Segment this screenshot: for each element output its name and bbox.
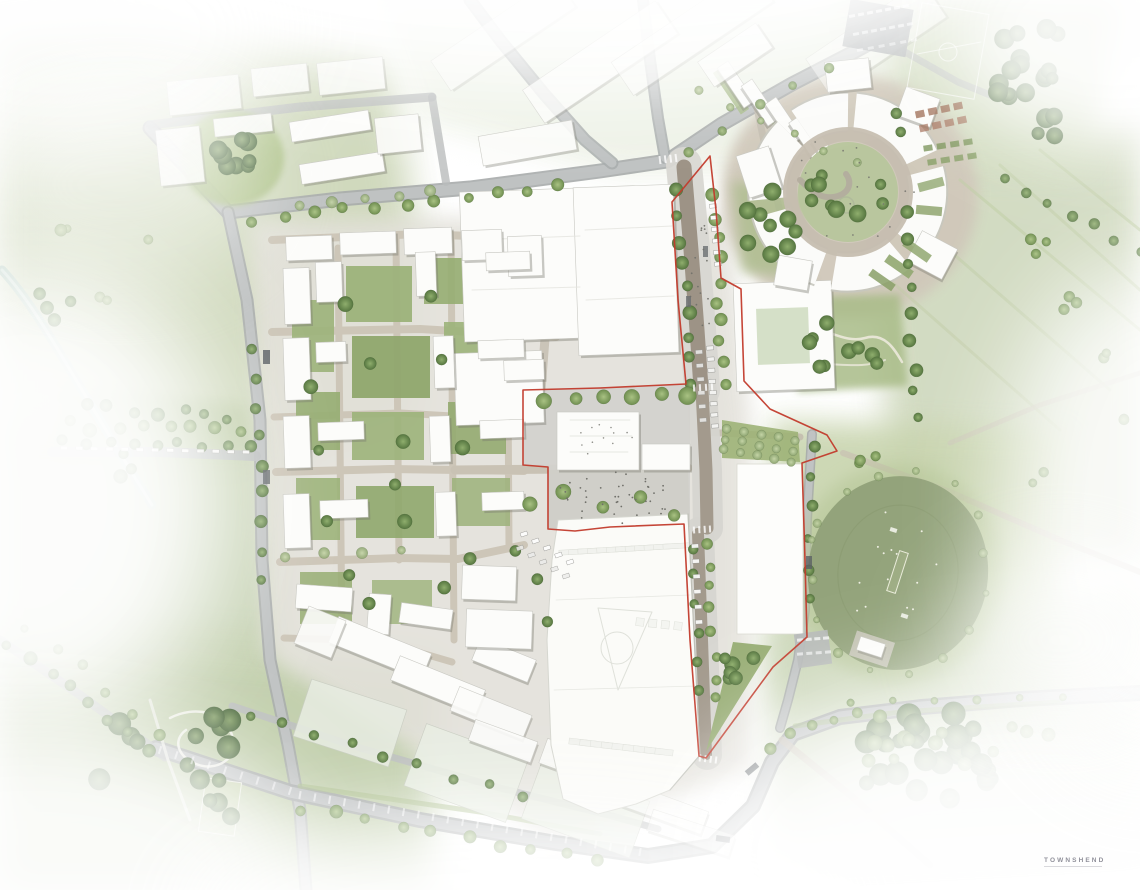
masterplan-canvas xyxy=(0,0,1140,890)
ring-wing xyxy=(825,58,874,95)
bus-shelter xyxy=(263,470,270,484)
building xyxy=(482,491,527,513)
bus-shelter xyxy=(263,350,270,364)
ring-wing xyxy=(774,255,814,293)
townshend-logo-mark-icon xyxy=(1044,857,1140,890)
building xyxy=(486,251,533,273)
bus-shelter xyxy=(703,246,708,257)
building xyxy=(316,341,349,364)
building xyxy=(642,444,692,473)
main-street xyxy=(698,534,706,754)
courtyard xyxy=(346,266,412,322)
parking-lot xyxy=(794,630,832,668)
building xyxy=(283,268,313,327)
building xyxy=(480,419,527,441)
masterplan-site-plan: TOWNSHEND xyxy=(0,0,1140,890)
building xyxy=(295,584,354,614)
building xyxy=(461,565,518,603)
building xyxy=(283,416,313,471)
main-street xyxy=(702,390,707,528)
building xyxy=(435,492,459,539)
building xyxy=(283,494,313,551)
bus-shelter xyxy=(806,556,812,569)
townshend-logo: TOWNSHEND xyxy=(1044,857,1140,864)
building xyxy=(429,416,453,465)
building xyxy=(340,231,399,257)
building xyxy=(478,339,527,361)
building xyxy=(504,359,547,383)
building xyxy=(374,114,424,157)
east-building-courtyard xyxy=(756,307,810,365)
blank-development-plot xyxy=(737,464,803,634)
hospital-footprint xyxy=(547,514,700,814)
building xyxy=(318,421,367,443)
building xyxy=(286,235,335,263)
plaza-building xyxy=(557,412,641,473)
townshend-logo-subline xyxy=(1044,866,1102,867)
bus-shelter xyxy=(686,296,691,307)
building xyxy=(465,609,534,652)
courtyard xyxy=(352,336,430,398)
building xyxy=(573,184,681,358)
ring-building-segment xyxy=(802,112,848,126)
